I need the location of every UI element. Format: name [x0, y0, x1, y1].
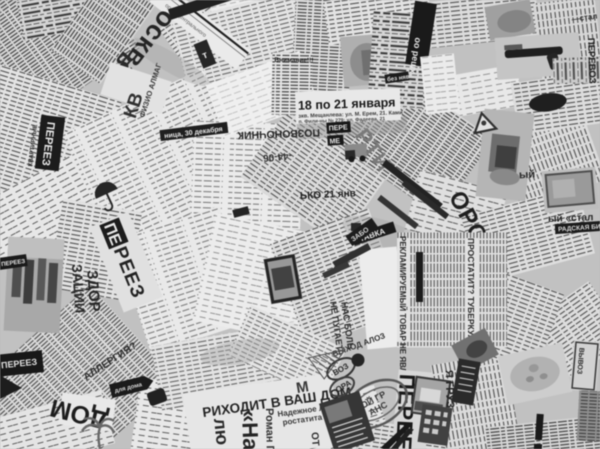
svg-text:Роман Г: Роман Г [263, 408, 276, 449]
svg-text:ПЕРЕВОЗ: ПЕРЕВОЗ [585, 38, 598, 84]
svg-text:«На: «На [237, 410, 263, 449]
svg-text:МЕ: МЕ [329, 138, 340, 146]
svg-text:Внимание!!!: Внимание!!! [274, 57, 313, 65]
svg-text:РЕКЛАМИРУЕМЫЙ ТОВАР НЕ ЯВЛ: РЕКЛАМИРУЕМЫЙ ТОВАР НЕ ЯВЛ [398, 236, 407, 374]
svg-text:ПЕРЕ: ПЕРЕ [328, 124, 348, 132]
svg-text:ый: ый [519, 169, 536, 182]
svg-text:лю: лю [210, 417, 233, 446]
svg-text:ОТ ГР: ОТ ГР [309, 432, 323, 449]
svg-text:ЗДОР: ЗДОР [83, 269, 103, 312]
